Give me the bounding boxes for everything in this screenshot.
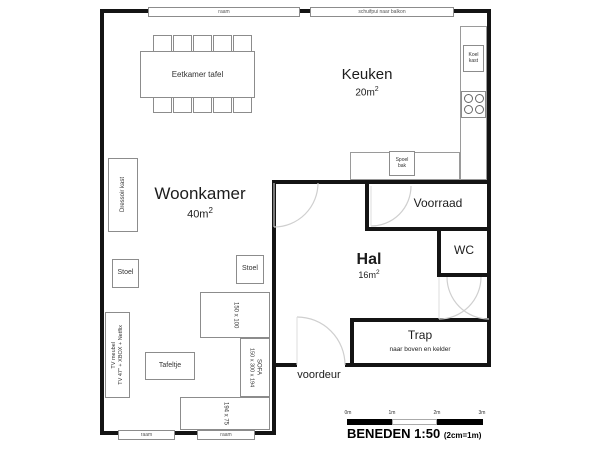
sink-label: Spoel bak: [392, 158, 412, 170]
sofa-seat: 150 x 300 x 194 SOFA: [240, 338, 270, 397]
plan-title: BENEDEN 1:50 (2cm=1m): [347, 427, 481, 440]
wall-hal-top: [272, 180, 491, 184]
wall-hal-bottom-left: [272, 363, 297, 367]
door-arc-wc: [439, 277, 481, 319]
dining-chair: [213, 35, 232, 52]
window-label: schuifpui naar balkon: [358, 10, 405, 15]
room-area-keuken: 20m2: [355, 86, 378, 98]
sideboard-label: Dressoir kast: [120, 177, 127, 212]
room-label-woonkamer: Woonkamer: [154, 185, 245, 202]
dining-chair: [233, 97, 252, 113]
dining-chair: [193, 35, 212, 52]
door-arc-wc-2: [447, 277, 489, 319]
window-schuifpui: schuifpui naar balkon: [310, 7, 454, 17]
scale-tick-2: 2m: [434, 411, 441, 416]
dining-table: Eetkamer tafel: [140, 51, 255, 98]
wall-left: [100, 9, 104, 435]
sofa-chaise: 150 x 100: [200, 292, 270, 338]
window-raam-bottom-right: raam: [197, 430, 255, 440]
scale-bar-segment: [437, 419, 483, 425]
sofa-chaise-dim: 150 x 100: [232, 302, 239, 328]
wall-right: [487, 9, 491, 367]
chair-label: Stoel: [118, 269, 134, 277]
fridge-label: Koel kast: [466, 53, 482, 65]
floor-plan: raam schuifpui naar balkon raam raam Eet…: [0, 0, 600, 450]
scale-tick-1: 1m: [389, 411, 396, 416]
wall-trap-top: [350, 318, 491, 322]
room-area-hal: 16m2: [358, 270, 379, 280]
chair-right: Stoel: [236, 255, 264, 284]
door-arc-voorraad: [371, 186, 411, 226]
room-label-voordeur: voordeur: [297, 370, 340, 381]
wall-wc-bottom: [437, 273, 491, 277]
room-label-wc: WC: [454, 244, 474, 256]
wall-hal-bottom-right: [345, 363, 491, 367]
chair-left: Stoel: [112, 259, 139, 288]
room-label-keuken: Keuken: [342, 67, 393, 82]
dining-chair: [173, 35, 192, 52]
dining-table-label: Eetkamer tafel: [172, 70, 224, 79]
window-label: raam: [141, 433, 152, 438]
dining-chair: [153, 35, 172, 52]
scale-tick-0: 0m: [345, 411, 352, 416]
door-arc-voordeur: [297, 317, 345, 365]
fridge: Koel kast: [463, 45, 484, 72]
scale-tick-3: 3m: [479, 411, 486, 416]
stove-burner-icon: [464, 105, 473, 114]
room-label-trap: Trap: [408, 329, 432, 341]
window-raam-bottom-left: raam: [118, 430, 175, 440]
sideboard: Dressoir kast: [108, 158, 138, 232]
stove-burner-icon: [464, 94, 473, 103]
stove-burner-icon: [475, 105, 484, 114]
tv-cabinet-name: TV meubel: [111, 342, 117, 369]
scale-bar-segment: [392, 419, 437, 425]
tv-cabinet-detail: TV 47" + XBOX + Netflix: [118, 325, 124, 385]
window-label: raam: [220, 433, 231, 438]
wall-voorraad-left: [365, 181, 369, 231]
door-arc-hal: [274, 183, 318, 227]
door-swing-overlay: [0, 0, 600, 450]
room-label-voorraad: Voorraad: [414, 197, 463, 209]
chair-label: Stoel: [242, 265, 258, 273]
side-table-label: Tafeltje: [159, 362, 181, 370]
dining-chair: [173, 97, 192, 113]
wall-wc-left: [437, 227, 441, 277]
stove-burner-icon: [475, 94, 484, 103]
sink: Spoel bak: [389, 151, 415, 176]
tv-cabinet: TV meubel TV 47" + XBOX + Netflix: [105, 312, 130, 398]
wall-hal-left: [272, 180, 276, 435]
sofa-name: SOFA: [255, 359, 262, 375]
plan-title-text: BENEDEN 1:50: [347, 426, 440, 441]
room-label-hal: Hal: [357, 252, 382, 268]
room-area-woonkamer: 40m2: [187, 207, 213, 221]
window-raam-top: raam: [148, 7, 300, 17]
sofa-bottom-dim: 194 x 75: [222, 402, 229, 425]
dining-chair: [153, 97, 172, 113]
plan-scale-note: (2cm=1m): [444, 431, 482, 440]
wall-voorraad-bottom: [365, 227, 491, 231]
dining-chair: [213, 97, 232, 113]
scale-bar-segment: [347, 419, 392, 425]
dining-chair: [193, 97, 212, 113]
wall-trap-left: [350, 318, 354, 367]
room-label-trap-sub: naar boven en kelder: [389, 347, 450, 354]
sofa-section-bottom: 194 x 75: [180, 397, 270, 430]
window-label: raam: [218, 10, 229, 15]
side-table: Tafeltje: [145, 352, 195, 380]
dining-chair: [233, 35, 252, 52]
